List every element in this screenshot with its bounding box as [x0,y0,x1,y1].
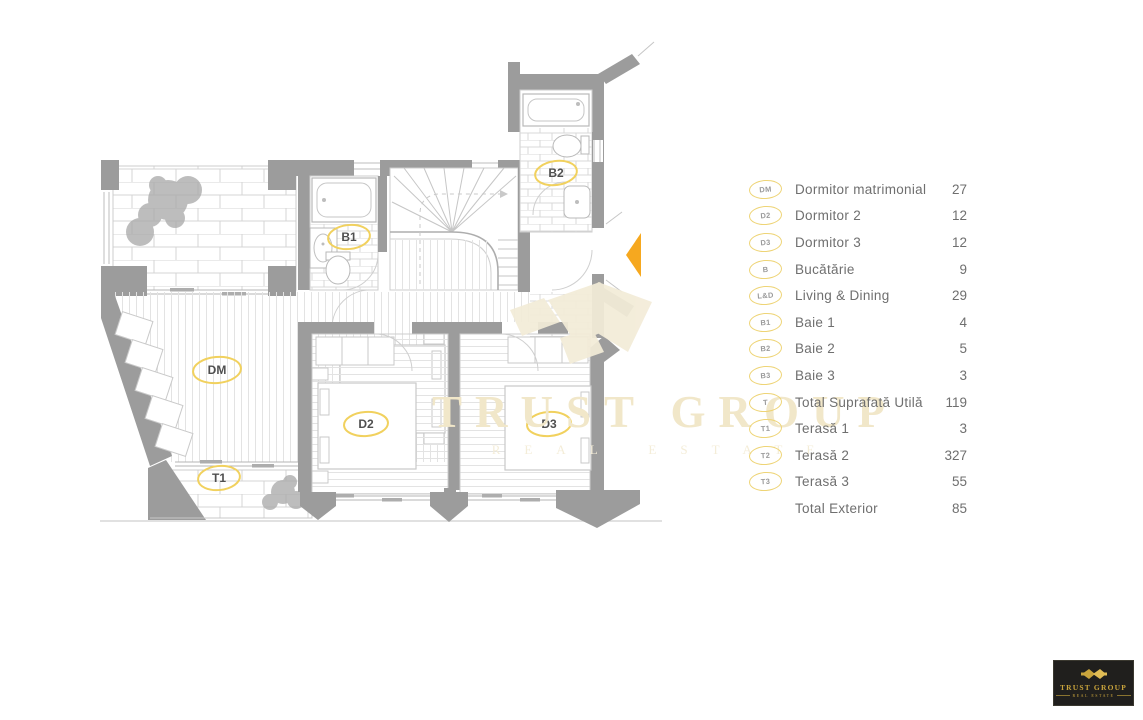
legend-row: D2 Dormitor 2 12 [749,203,967,230]
area-value: 3 [929,368,967,383]
hall-floor [390,240,491,290]
room-label: Bucătărie [795,262,929,277]
terrace-t1 [148,460,312,520]
legend-row: T Total Suprafată Utilă 119 [749,389,967,416]
area-value: 3 [929,421,967,436]
legend-row: B1 Baie 1 4 [749,309,967,336]
room-badge: T2 [748,445,782,466]
legend-row: T2 Terasă 2 327 [749,442,967,469]
svg-text:B1: B1 [341,230,357,244]
room-label: Dormitor matrimonial [795,182,929,197]
area-value: 29 [929,288,967,303]
area-value: 12 [929,235,967,250]
area-value: 27 [929,182,967,197]
area-value: 119 [929,395,967,410]
entrance-arrow-icon [626,233,641,277]
room-label: Total Exterior [795,501,929,516]
legend-row: B3 Baie 3 3 [749,362,967,389]
area-value: 12 [929,208,967,223]
area-value: 55 [929,474,967,489]
logo-rule-left [1056,695,1070,696]
room-label: Terasă 3 [795,474,929,489]
page: B2 B1 DM D2 D3 T1 TRUST [0,0,1143,720]
legend-row: B Bucătărie 9 [749,256,967,283]
legend-row: B2 Baie 2 5 [749,336,967,363]
legend-row: L&D Living & Dining 29 [749,282,967,309]
room-label: Terasă 1 [795,421,929,436]
logo-title: TRUST GROUP [1060,683,1127,692]
room-badge: D2 [748,205,782,226]
room-label: Baie 2 [795,341,929,356]
room-label: Baie 3 [795,368,929,383]
room-badge: B3 [748,365,782,386]
logo-rule-right [1117,695,1131,696]
room-label: Dormitor 3 [795,235,929,250]
room-label: Dormitor 2 [795,208,929,223]
area-value: 9 [929,262,967,277]
room-badge: B [748,258,782,279]
room-badge: L&D [748,285,782,306]
svg-text:DM: DM [208,363,227,377]
svg-text:T1: T1 [212,471,226,485]
room-badge: D3 [748,232,782,253]
legend-row: D3 Dormitor 3 12 [749,229,967,256]
svg-text:D2: D2 [358,417,374,431]
area-value: 4 [929,315,967,330]
legend-row: Total Exterior 85 [749,495,967,522]
room-d2 [298,322,460,502]
handshake-icon [1081,668,1107,681]
brand-logo: TRUST GROUP REAL ESTATE [1053,660,1134,706]
room-badge: T1 [748,418,782,439]
room-badge: T3 [748,471,782,492]
legend-row: DM Dormitor matrimonial 27 [749,176,967,203]
room-label: Terasă 2 [795,448,929,463]
legend-row: T3 Terasă 3 55 [749,469,967,496]
legend-row: T1 Terasă 1 3 [749,415,967,442]
terrace-top-left [101,160,296,296]
room-label: Total Suprafată Utilă [795,395,929,410]
svg-text:B2: B2 [548,166,564,180]
legend: DM Dormitor matrimonial 27 D2 Dormitor 2… [749,176,967,522]
room-badge: B2 [748,338,782,359]
room-badge: DM [748,179,782,200]
area-value: 327 [929,448,967,463]
room-badge: B1 [748,312,782,333]
area-value: 5 [929,341,967,356]
floor-plan: B2 B1 DM D2 D3 T1 [0,0,1143,720]
logo-subtitle: REAL ESTATE [1073,693,1115,698]
room-label: Living & Dining [795,288,929,303]
room-label: Baie 1 [795,315,929,330]
room-badge: T [748,391,782,412]
area-value: 85 [929,501,967,516]
svg-text:D3: D3 [541,417,557,431]
